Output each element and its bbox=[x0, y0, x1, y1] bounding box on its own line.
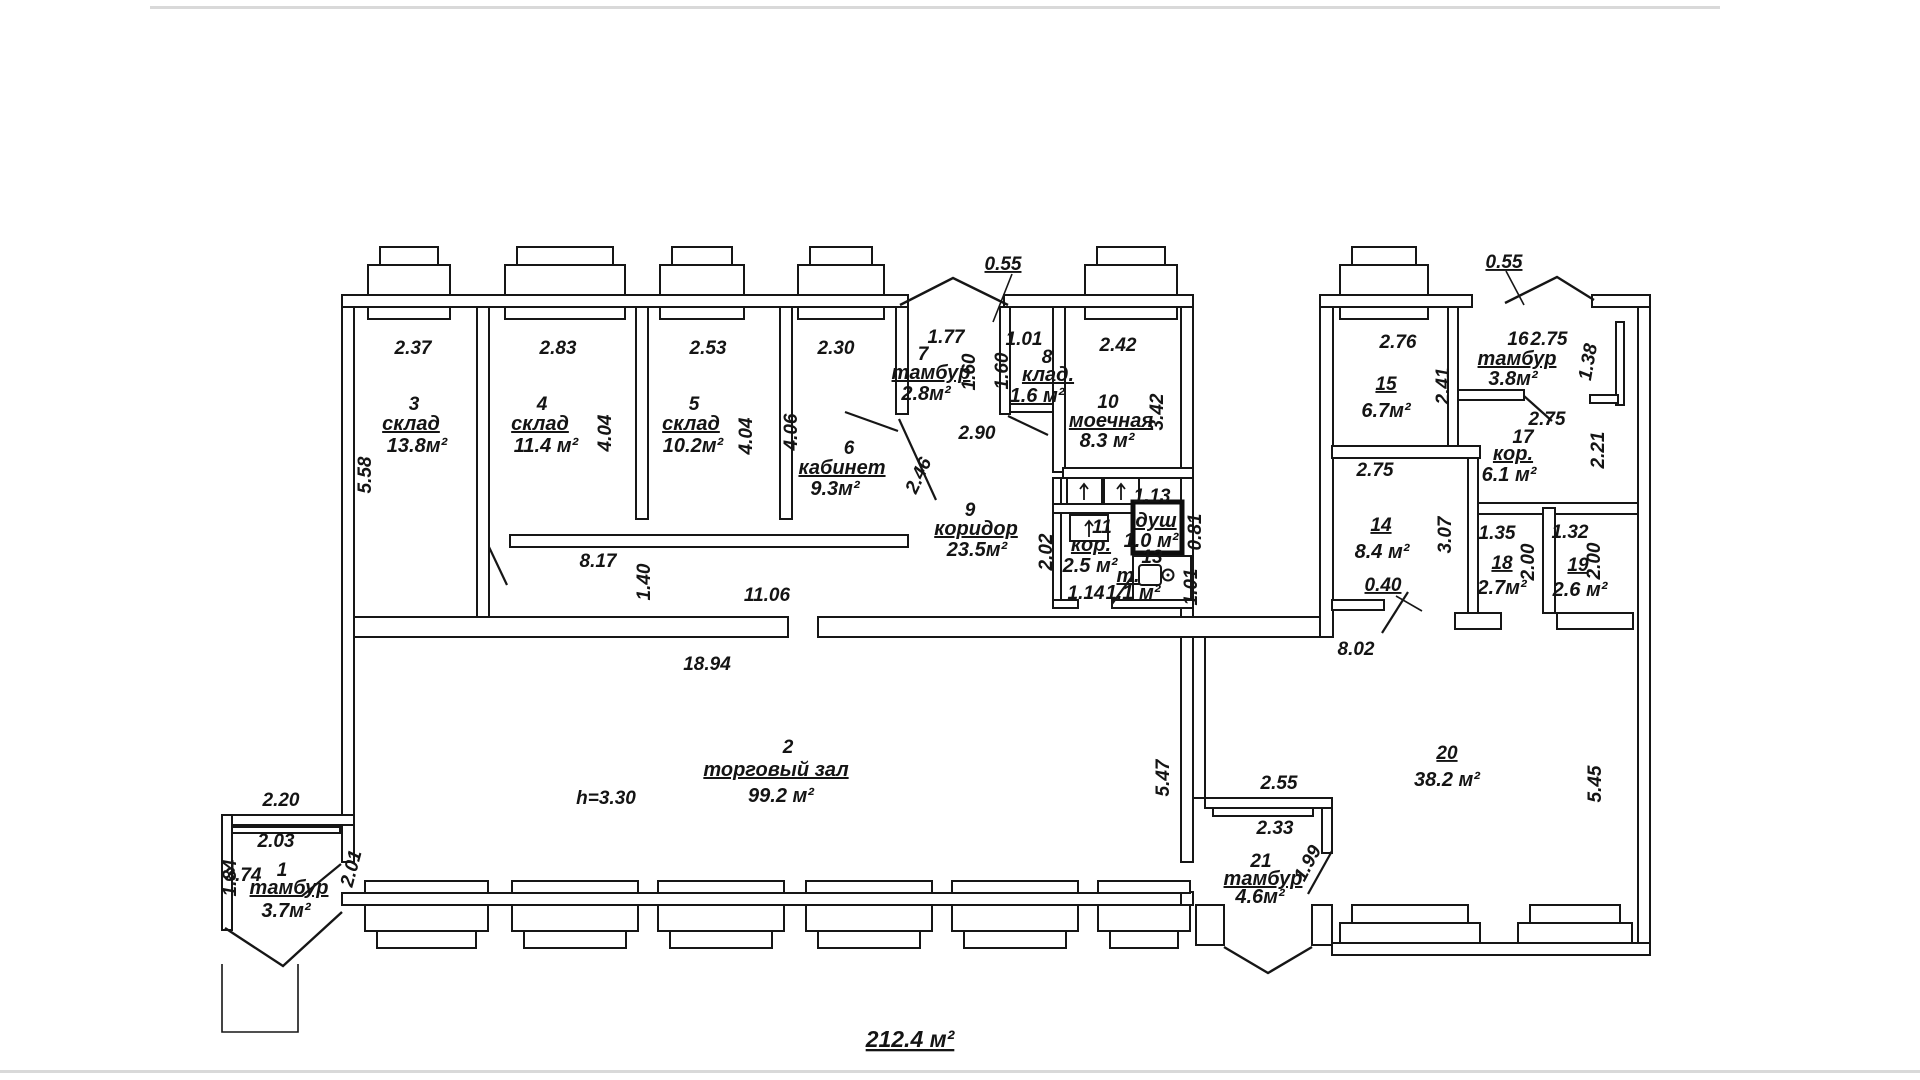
wall bbox=[222, 815, 354, 825]
dimension-label: 1.77 bbox=[928, 327, 966, 348]
window bbox=[660, 265, 744, 295]
window bbox=[658, 881, 784, 893]
dimension-label: 1.01 bbox=[1006, 329, 1043, 350]
dimension-label: 8.17 bbox=[580, 551, 618, 572]
dimension-label: 2.03 bbox=[257, 831, 295, 852]
room-number-label: 2 bbox=[782, 737, 794, 758]
dimension-label: 2.30 bbox=[817, 338, 855, 359]
room-name-label: клад. bbox=[1022, 364, 1074, 386]
room-number-label: 6 bbox=[844, 438, 855, 459]
dimension-label: 5.47 bbox=[1153, 758, 1174, 796]
porch-steps-outline bbox=[222, 964, 298, 1032]
dimension-label: 0.55 bbox=[985, 254, 1022, 275]
wall bbox=[1616, 322, 1624, 405]
room-number-label: 13 bbox=[1141, 547, 1163, 568]
dimension-label: 2.41 bbox=[1433, 368, 1454, 406]
room-area-label: 2.6 м² bbox=[1552, 579, 1609, 601]
dimension-label: 2.33 bbox=[1256, 818, 1294, 839]
dimension-label: 2.00 bbox=[1584, 542, 1605, 580]
wall bbox=[1322, 808, 1332, 853]
window bbox=[368, 265, 450, 295]
room-area-label: 10.2м² bbox=[663, 435, 725, 457]
door-leaf bbox=[1382, 592, 1408, 633]
room-area-label: 6.1 м² bbox=[1482, 464, 1538, 486]
room-area-label: 9.3м² bbox=[810, 478, 861, 500]
dimension-label: 5.58 bbox=[355, 456, 376, 493]
wall bbox=[1213, 808, 1313, 816]
sink-drain-dot bbox=[1167, 574, 1170, 577]
window bbox=[952, 881, 1078, 893]
wall bbox=[1193, 637, 1205, 798]
dimension-label: 8.02 bbox=[1338, 639, 1375, 660]
wall bbox=[1063, 468, 1193, 478]
dimension-label: 1.40 bbox=[634, 563, 655, 600]
door-leaf bbox=[845, 412, 898, 431]
room-number-label: 4 bbox=[536, 394, 548, 415]
wall bbox=[1205, 798, 1332, 808]
wall bbox=[354, 617, 788, 637]
room-name-label: кор. bbox=[1493, 443, 1533, 465]
room-number-label: 16 bbox=[1507, 329, 1529, 350]
room-area-label: 2.8м² bbox=[900, 383, 952, 405]
room-area-label: 3.7м² bbox=[261, 900, 312, 922]
room-area-label: 8.4 м² bbox=[1355, 541, 1411, 563]
dimension-label: 2.55 bbox=[1260, 773, 1298, 794]
door-leaf bbox=[1008, 416, 1048, 435]
dimension-label: 18.94 bbox=[683, 654, 731, 675]
wall bbox=[1592, 295, 1650, 307]
porch-chamfer bbox=[1224, 947, 1312, 973]
dimension-label: 3.74 bbox=[225, 865, 262, 886]
dimension-label: 1.60 bbox=[992, 352, 1013, 389]
dimension-label: 1.60 bbox=[959, 353, 980, 390]
room-name-label: склад bbox=[511, 413, 569, 435]
room-name-label: кор. bbox=[1071, 534, 1111, 556]
wall bbox=[510, 535, 908, 547]
wall bbox=[1458, 390, 1524, 400]
dimension-label: 2.90 bbox=[958, 423, 996, 444]
dimension-label: 0.40 bbox=[1365, 575, 1402, 596]
room-name-label: моечная bbox=[1069, 410, 1154, 432]
window bbox=[512, 881, 638, 893]
room-number-label: 3 bbox=[409, 394, 420, 415]
room-name-label: душ bbox=[1135, 510, 1176, 532]
room-area-label: 23.5м² bbox=[946, 539, 1009, 561]
dimension-label: 2.83 bbox=[539, 338, 577, 359]
porch-roof bbox=[1505, 277, 1594, 303]
dimension-label: 2.75 bbox=[1356, 460, 1394, 481]
dimension-label: 2.42 bbox=[1099, 335, 1137, 356]
room-area-label: 38.2 м² bbox=[1414, 769, 1481, 791]
dimension-label: 2.76 bbox=[1379, 332, 1417, 353]
dimension-label: 2.00 bbox=[1518, 543, 1539, 581]
room-area-label: 99.2 м² bbox=[748, 785, 815, 807]
dimension-label: 2.75 bbox=[1528, 409, 1566, 430]
dimension-label: 1.13 bbox=[1134, 486, 1171, 507]
wall bbox=[342, 307, 354, 862]
dimension-label: 2.20 bbox=[262, 790, 300, 811]
room-area-label: 1.1 м² bbox=[1106, 582, 1162, 604]
room-area-label: 2.5 м² bbox=[1062, 555, 1119, 577]
wall bbox=[1320, 295, 1472, 307]
wall bbox=[342, 295, 908, 307]
floor-plan-page: 1тамбур3.7м²2торговый зал99.2 м²3склад13… bbox=[0, 0, 1920, 1080]
porch-roof bbox=[900, 278, 1008, 305]
wall bbox=[1196, 905, 1224, 945]
window bbox=[1340, 265, 1428, 295]
dimension-label: 0.81 bbox=[1185, 514, 1206, 551]
room-area-label: 1.6 м² bbox=[1010, 385, 1066, 407]
room-name-label: склад bbox=[382, 413, 440, 435]
wall bbox=[1332, 446, 1480, 458]
dimension-label: 4.06 bbox=[781, 413, 802, 451]
dimension-label: 2.21 bbox=[1588, 432, 1609, 470]
window bbox=[1098, 881, 1190, 893]
window bbox=[365, 881, 488, 893]
room-name-label: склад bbox=[662, 413, 720, 435]
room-number-label: 18 bbox=[1491, 553, 1513, 574]
window bbox=[505, 265, 625, 295]
dimension-label: 2.02 bbox=[1036, 533, 1057, 571]
dimension-label: 1.14 bbox=[1068, 583, 1105, 604]
door-leaf bbox=[489, 547, 507, 585]
room-name-label: торговый зал bbox=[703, 759, 849, 781]
room-area-label: 3.8м² bbox=[1488, 368, 1539, 390]
wall bbox=[818, 617, 1332, 637]
dimension-label: 11.06 bbox=[744, 585, 791, 606]
window bbox=[798, 265, 884, 295]
dimension-label: 3.42 bbox=[1147, 393, 1168, 430]
window bbox=[806, 881, 932, 893]
total-area-label: 212.4 м² bbox=[865, 1026, 956, 1052]
wall bbox=[1320, 307, 1333, 637]
dimension-label: 2.75 bbox=[1530, 329, 1568, 350]
dimension-label: 5.45 bbox=[1585, 765, 1606, 802]
room-number-label: 14 bbox=[1370, 515, 1392, 536]
wall bbox=[1004, 295, 1193, 307]
dimension-label: 4.04 bbox=[736, 417, 757, 455]
room-name-label: кабинет bbox=[798, 457, 885, 479]
wall bbox=[636, 307, 648, 519]
wall bbox=[1638, 307, 1650, 955]
room-area-label: 13.8м² bbox=[387, 435, 449, 457]
wall bbox=[1455, 613, 1501, 629]
dimension-label: 1.99 bbox=[1290, 842, 1326, 885]
window bbox=[1340, 923, 1480, 943]
wall bbox=[780, 307, 792, 519]
wall bbox=[1557, 613, 1633, 629]
wall bbox=[1590, 395, 1618, 403]
floor-plan-drawing: 1тамбур3.7м²2торговый зал99.2 м²3склад13… bbox=[0, 0, 1920, 1080]
dimension-label: 3.07 bbox=[1435, 515, 1456, 553]
dimension-label: 1.38 bbox=[1575, 342, 1602, 382]
dimension-label: 4.04 bbox=[595, 414, 616, 452]
equipment-rail bbox=[1053, 504, 1137, 513]
room-area-label: 6.7м² bbox=[1361, 400, 1412, 422]
room-area-label: 8.3 м² bbox=[1080, 430, 1136, 452]
dimension-label: 2.37 bbox=[394, 338, 433, 359]
window bbox=[1518, 923, 1632, 943]
room-area-label: 11.4 м² bbox=[514, 435, 580, 457]
room-number-label: 15 bbox=[1375, 374, 1397, 395]
dimension-label: 0.55 bbox=[1486, 252, 1523, 273]
dimension-label: 1.35 bbox=[1479, 523, 1516, 544]
dimension-label: h=3.30 bbox=[576, 788, 636, 809]
room-number-label: 5 bbox=[689, 394, 700, 415]
wall bbox=[1312, 905, 1332, 945]
dimension-label: 1.01 bbox=[1181, 569, 1202, 606]
window bbox=[1085, 265, 1177, 295]
wall bbox=[342, 893, 1193, 905]
room-name-label: тамбур bbox=[1478, 348, 1557, 370]
room-number-label: 20 bbox=[1435, 743, 1458, 764]
dimension-label: 2.53 bbox=[689, 338, 727, 359]
wall bbox=[477, 307, 489, 617]
wall bbox=[1332, 600, 1384, 610]
room-area-label: 4.6м² bbox=[1234, 886, 1286, 908]
room-name-label: коридор bbox=[934, 518, 1018, 540]
dimension-label: 1.32 bbox=[1552, 522, 1589, 543]
wall bbox=[1332, 943, 1650, 955]
